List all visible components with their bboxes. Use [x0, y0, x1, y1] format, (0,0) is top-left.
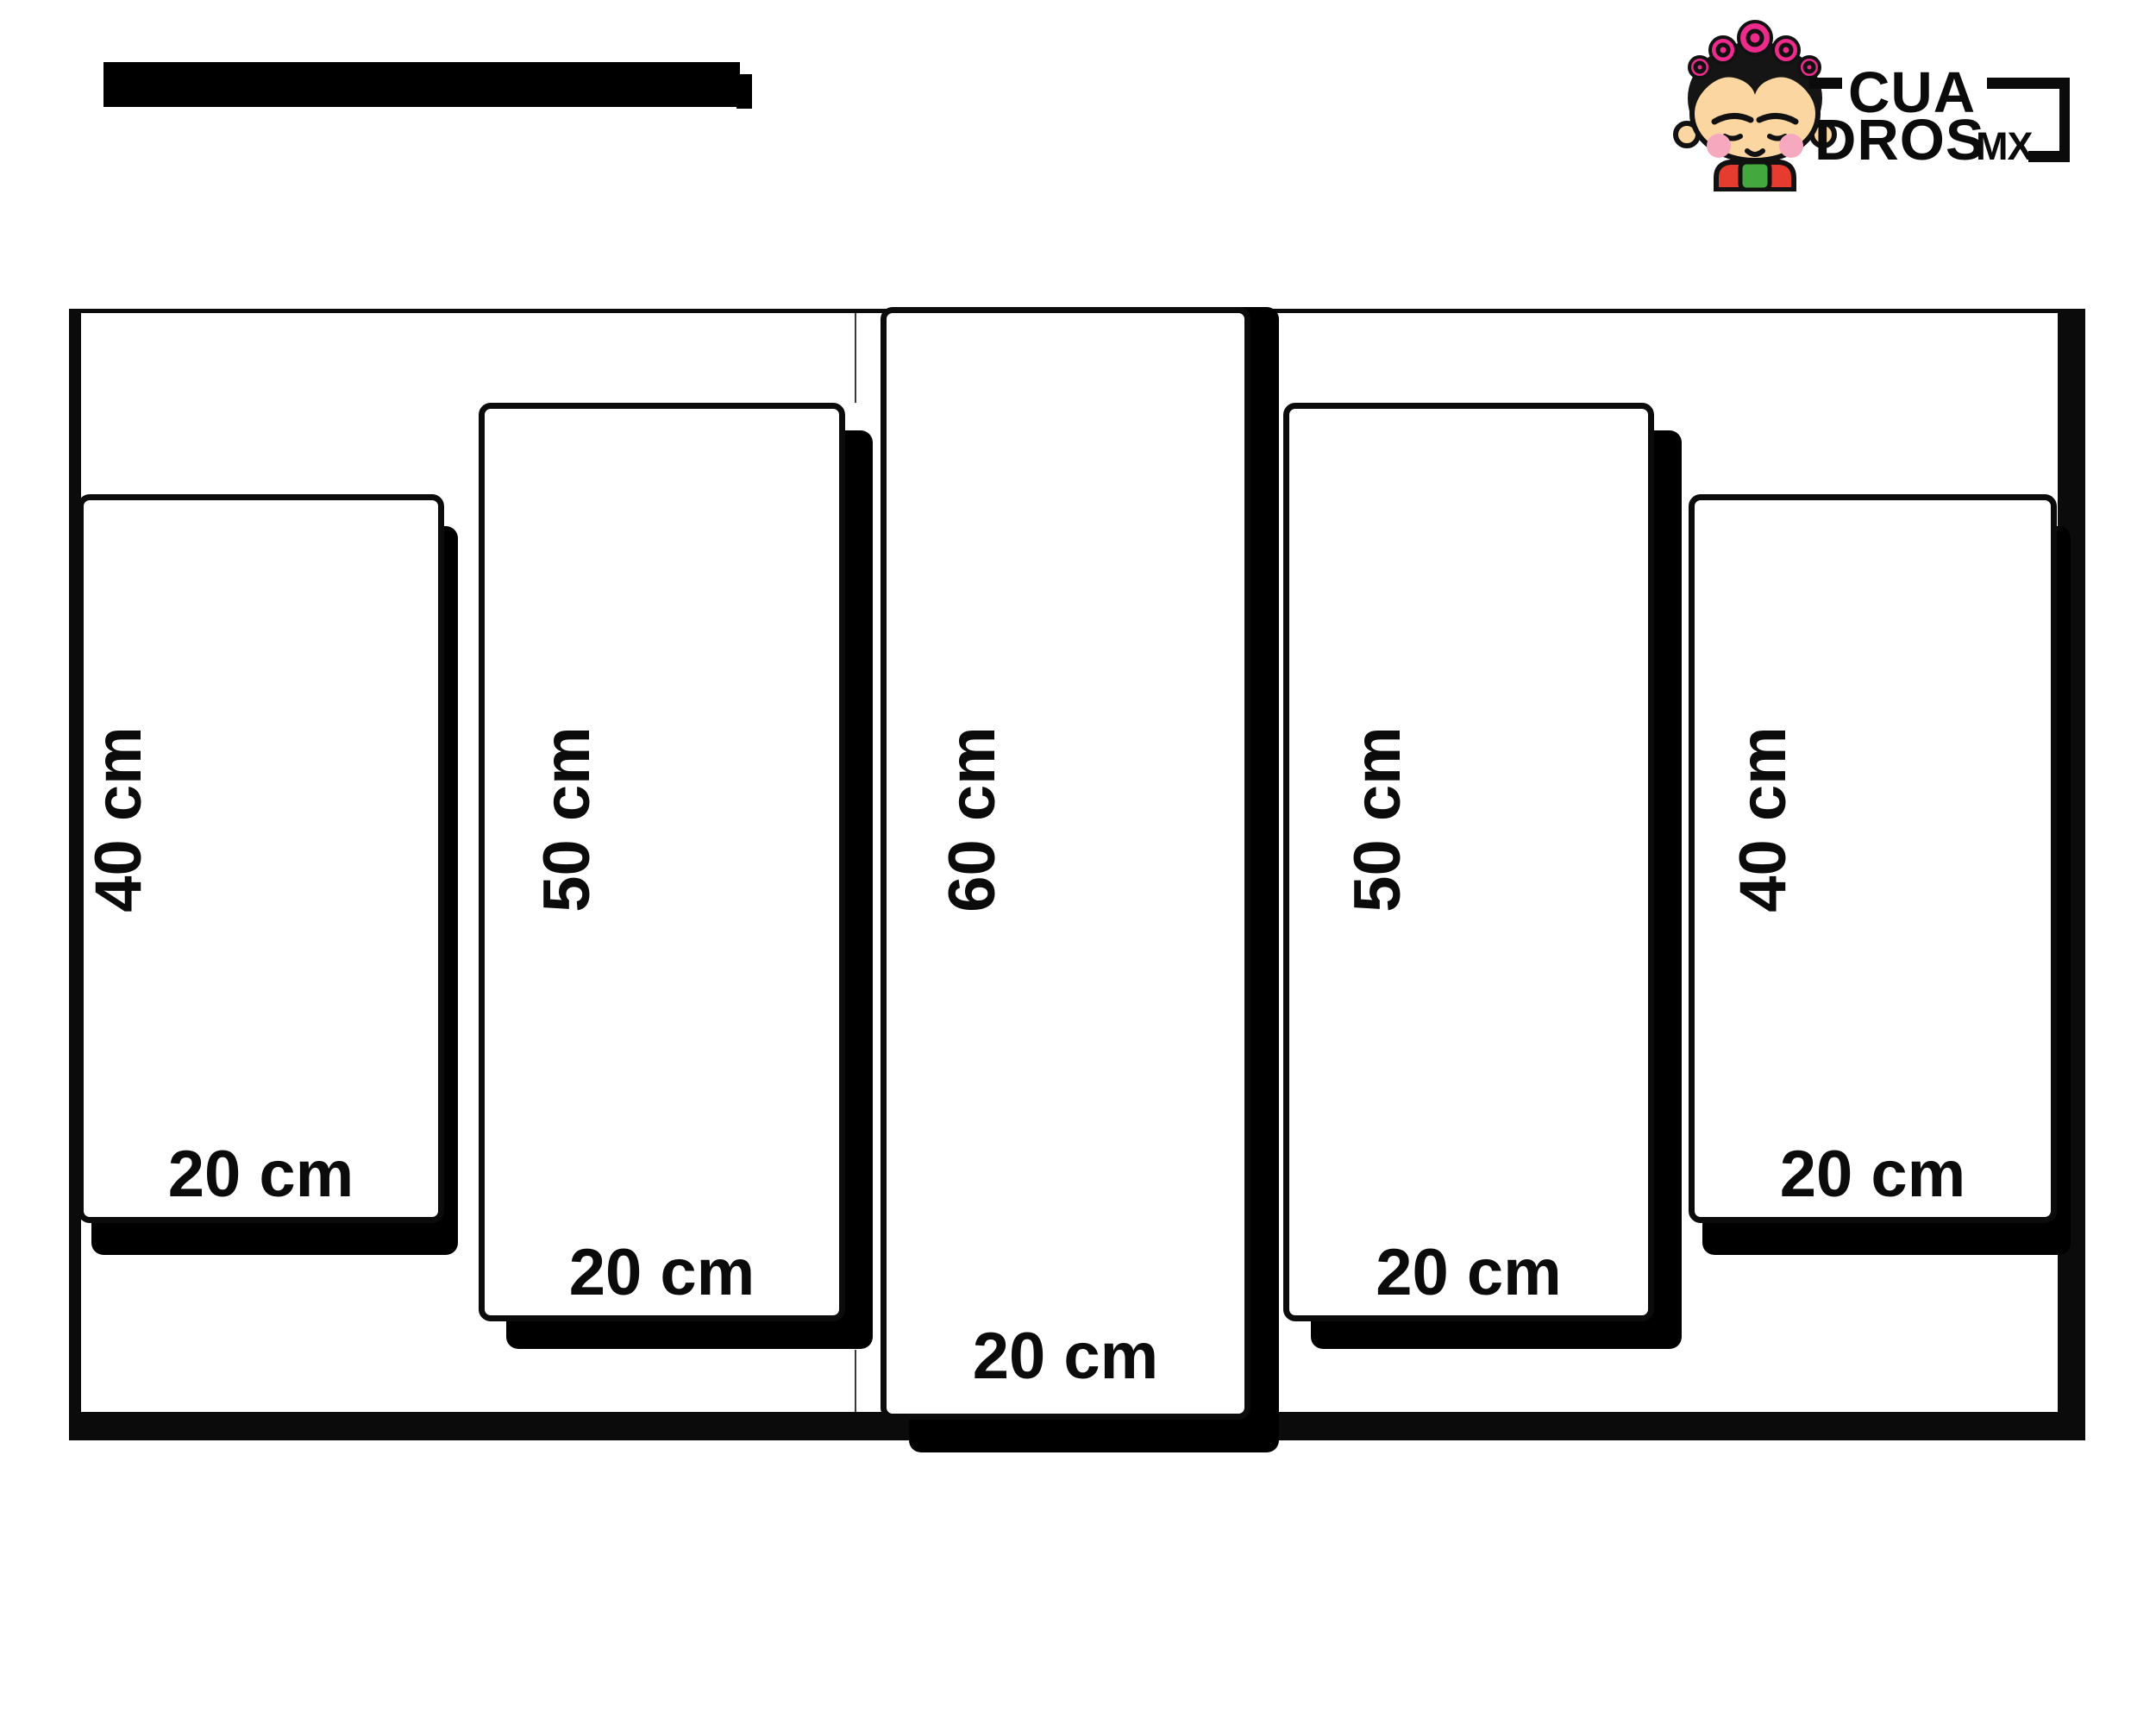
panel-2-width-label: 20 cm — [485, 1235, 839, 1310]
size-diagram-page: CUA DROS MX 40 cm 20 cm 50 cm 20 cm 60 c… — [0, 0, 2156, 1725]
panel-4-height-label: 50 cm — [1344, 690, 1413, 949]
canvas-panel-1: 40 cm 20 cm — [78, 494, 444, 1223]
logo-suffix: MX — [1976, 124, 2033, 168]
canvas-panel-3: 60 cm 20 cm — [881, 307, 1250, 1420]
redacted-title-bar — [103, 62, 740, 107]
panel-1-height-label: 40 cm — [85, 690, 154, 949]
panel-3-height-label: 60 cm — [938, 690, 1007, 949]
redacted-title-bar-stub — [736, 74, 752, 109]
panel-5-width-label: 20 cm — [1695, 1137, 2051, 1212]
canvas-panel-5: 40 cm 20 cm — [1689, 494, 2057, 1223]
brand-logo: CUA DROS MX — [1671, 7, 2077, 191]
panel-3-width-label: 20 cm — [887, 1319, 1244, 1394]
panel-5-height-label: 40 cm — [1729, 690, 1798, 949]
canvas-panel-4: 50 cm 20 cm — [1283, 403, 1654, 1321]
image-seam-bottom — [855, 1350, 856, 1412]
frida-girl-icon — [1676, 22, 1834, 190]
panel-1-width-label: 20 cm — [84, 1137, 438, 1212]
panel-2-height-label: 50 cm — [533, 690, 602, 949]
image-seam-top — [855, 313, 856, 403]
panel-4-width-label: 20 cm — [1289, 1235, 1648, 1310]
logo-word-bottom: DROS — [1814, 108, 1985, 172]
canvas-panel-2: 50 cm 20 cm — [479, 403, 845, 1321]
